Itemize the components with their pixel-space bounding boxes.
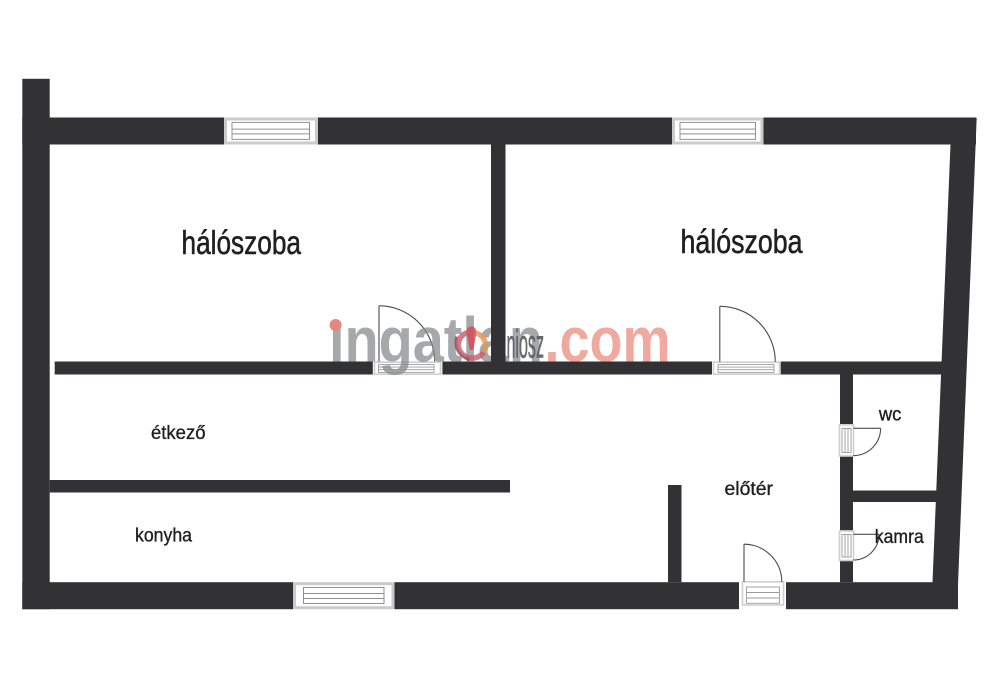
svg-text:hálószoba: hálószoba <box>182 224 302 261</box>
svg-text:hálószoba: hálószoba <box>681 223 804 260</box>
svg-text:konyha: konyha <box>135 526 192 547</box>
svg-text:étkező: étkező <box>151 423 206 444</box>
svg-text:wc: wc <box>878 405 901 426</box>
svg-text:előtér: előtér <box>725 478 774 500</box>
svg-text:kamra: kamra <box>875 527 924 548</box>
svg-text:niosz: niosz <box>507 323 545 367</box>
